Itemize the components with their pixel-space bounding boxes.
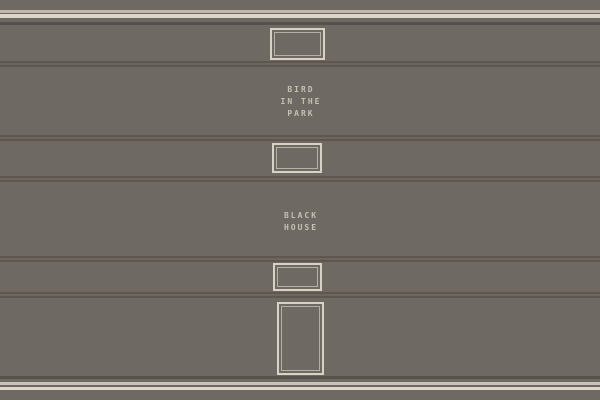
spine-groove-3 xyxy=(0,176,600,182)
book-label-plate-3[interactable] xyxy=(273,263,322,291)
plate-inner-border xyxy=(274,32,321,56)
book-label-plate-tall[interactable] xyxy=(277,302,324,375)
title-line: PARK xyxy=(240,108,360,120)
book-title-bird-in-the-park[interactable]: BIRD IN THE PARK xyxy=(240,84,360,120)
bottom-trim-line-light xyxy=(0,387,600,390)
title-line: HOUSE xyxy=(240,222,360,234)
book-label-plate-2[interactable] xyxy=(272,143,322,173)
spine-groove-2 xyxy=(0,135,600,141)
top-trim-line-dark xyxy=(0,22,600,25)
plate-inner-border xyxy=(281,306,320,371)
book-label-plate-1[interactable] xyxy=(270,28,325,60)
plate-inner-border xyxy=(277,267,318,287)
top-trim-line-muted xyxy=(0,10,600,13)
stacked-books-scene: BIRD IN THE PARK BLACK HOUSE xyxy=(0,0,600,400)
bottom-trim-line-dark xyxy=(0,376,600,379)
title-line: BLACK xyxy=(240,210,360,222)
top-trim-line-light xyxy=(0,14,600,18)
spine-groove-1 xyxy=(0,61,600,67)
bottom-trim-line-muted xyxy=(0,382,600,385)
plate-inner-border xyxy=(276,147,318,169)
title-line: BIRD xyxy=(240,84,360,96)
book-title-black-house[interactable]: BLACK HOUSE xyxy=(240,210,360,234)
spine-groove-4 xyxy=(0,256,600,262)
title-line: IN THE xyxy=(240,96,360,108)
spine-groove-5 xyxy=(0,292,600,298)
